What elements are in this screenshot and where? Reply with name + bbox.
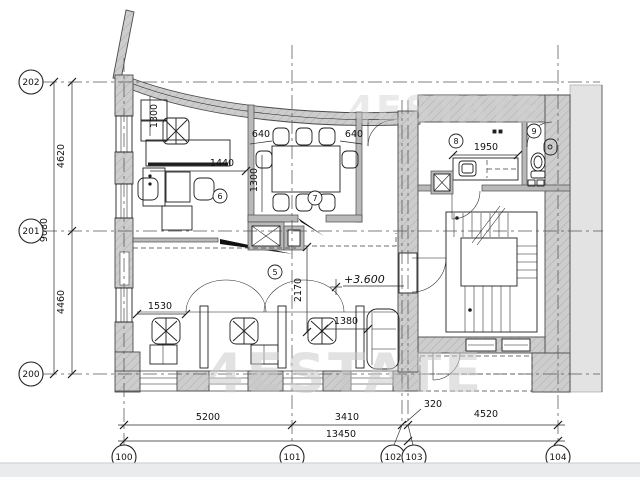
room-label-open-office: 5 <box>272 268 277 277</box>
site-margin-band <box>570 85 602 392</box>
grid-col-102: 102 <box>384 453 401 463</box>
dim-kitchen-width: 1950 <box>474 142 498 153</box>
grid-row-200: 200 <box>22 370 39 380</box>
task-chair <box>230 318 258 344</box>
dim-bottom-a: 5200 <box>196 412 220 423</box>
task-chair <box>152 318 180 344</box>
grid-col-103: 103 <box>405 453 422 463</box>
floor-plan-drawing: 4620 4460 9080 5200 3410 320 4520 13450 … <box>0 0 640 477</box>
dim-office-width: 1440 <box>210 158 234 169</box>
bottom-dimensions: 5200 3410 320 4520 13450 <box>118 399 565 445</box>
dim-bottom-total: 13450 <box>326 429 356 440</box>
kitchen-furniture <box>431 130 518 194</box>
grid-col-104: 104 <box>549 453 566 463</box>
dim-bottom-b: 3410 <box>335 412 359 423</box>
dim-meeting-left: 640 <box>252 129 270 140</box>
left-dimensions: 4620 4460 9080 <box>39 78 76 378</box>
dim-bottom-d: 4520 <box>474 409 498 420</box>
floor-plan-page: 4620 4460 9080 5200 3410 320 4520 13450 … <box>0 0 640 477</box>
dim-left-upper: 4620 <box>56 144 67 168</box>
grid-col-100: 100 <box>115 453 132 463</box>
kitchen-door <box>452 191 480 219</box>
vent-shaft <box>248 222 284 250</box>
dim-desk-width: 1530 <box>148 301 172 312</box>
office-side-table <box>166 172 190 202</box>
room-label-meeting: 7 <box>312 194 317 203</box>
room-label-kitchen: 8 <box>453 137 458 146</box>
room-label-office: 6 <box>217 192 222 201</box>
kitchen-shaft <box>431 171 453 194</box>
dim-sofa-width: 1380 <box>334 316 358 327</box>
office-guest-chairs <box>138 178 214 230</box>
grid-row-202: 202 <box>22 78 39 88</box>
duct-shaft <box>284 226 304 250</box>
elevation-value: +3.600 <box>344 273 385 286</box>
stairs <box>446 206 537 332</box>
watermark-main: 4ESTATE <box>206 342 484 405</box>
bottom-bar <box>0 463 640 477</box>
grid-col-101: 101 <box>283 453 300 463</box>
meeting-table <box>272 146 340 192</box>
meeting-room-left-wall <box>248 105 254 222</box>
top-left-wall-stub <box>113 10 134 79</box>
dim-meeting-depth: 1300 <box>249 168 260 192</box>
dim-open-depth: 2170 <box>293 278 304 302</box>
watermark-top: 4ESTATE <box>347 88 542 132</box>
dim-office-depth: 1300 <box>149 104 160 128</box>
elevation-mark: +3.600 <box>330 273 404 295</box>
grid-row-201: 201 <box>22 227 39 237</box>
dim-left-lower: 4460 <box>56 290 67 314</box>
meeting-furniture <box>256 128 358 211</box>
